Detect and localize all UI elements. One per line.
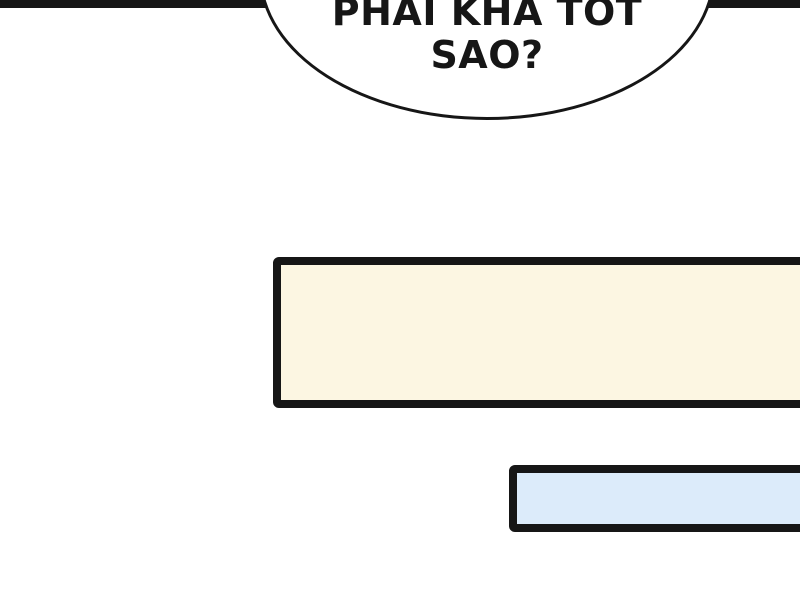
comic-page: PHAI KHA TOT SAO?	[0, 0, 800, 600]
comic-panel-blue	[509, 465, 800, 532]
speech-bubble-text: PHAI KHA TOT SAO?	[259, 0, 715, 77]
comic-panel-cream	[273, 257, 800, 408]
speech-line-1: PHAI KHA TOT	[259, 0, 715, 34]
speech-line-2: SAO?	[259, 34, 715, 77]
